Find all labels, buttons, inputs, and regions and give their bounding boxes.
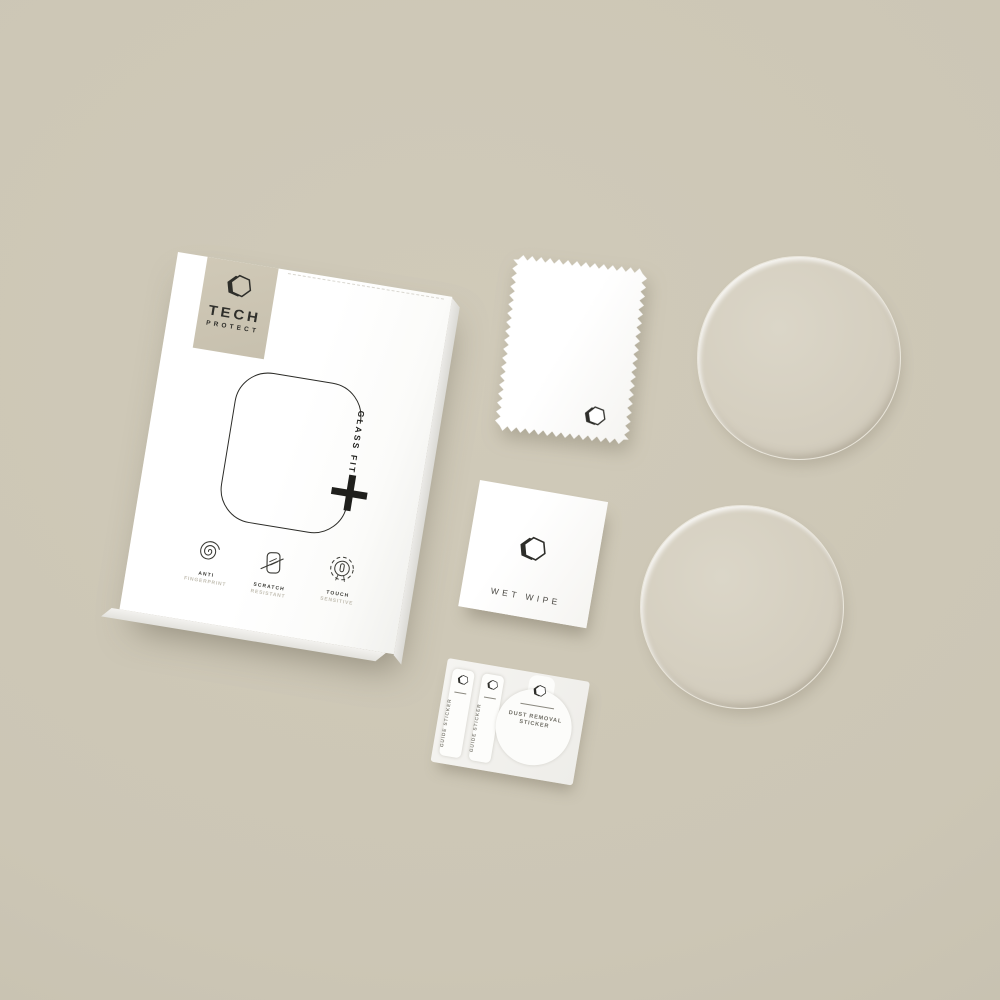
glass-disc-1 (697, 256, 901, 460)
brand-badge: TECH PROTECT (193, 257, 279, 359)
cloth-hexagon-icon (581, 403, 609, 429)
box-bottom-edge (101, 608, 386, 661)
wet-wipe-hexagon-icon (515, 532, 551, 566)
product-box: TECH PROTECT GLASS FIT ANTI FINGERPRINT (119, 252, 452, 654)
brand-hexagon-icon (222, 270, 256, 301)
box-right-edge (394, 298, 460, 665)
microfiber-cloth-wrap (494, 254, 648, 445)
feature-scratch-resistant: SCRATCH RESISTANT (233, 540, 310, 603)
scene-background: TECH PROTECT GLASS FIT ANTI FINGERPRINT (0, 0, 1000, 1000)
dust-sticker-hexagon-icon (531, 683, 549, 699)
glass-disc-2 (640, 505, 844, 709)
plus-icon (329, 472, 370, 513)
guide-sticker-hexagon-icon (485, 678, 500, 692)
guide-sticker-hexagon-icon (455, 673, 470, 687)
box-lid-seam (288, 273, 444, 300)
wet-wipe-packet: WET WIPE (458, 480, 608, 628)
guide-sticker-1: GUIDE STICKER (439, 668, 475, 758)
divider-line (520, 703, 554, 710)
microfiber-cloth (494, 254, 648, 445)
wet-wipe-label: WET WIPE (461, 581, 591, 613)
feature-touch-sensitive: TOUCH SENSITIVE (302, 547, 379, 610)
sticker-card: GUIDE STICKER GUIDE STICKER DUST REMOVAL… (430, 658, 589, 786)
guide-sticker-label: GUIDE STICKER (439, 694, 470, 755)
